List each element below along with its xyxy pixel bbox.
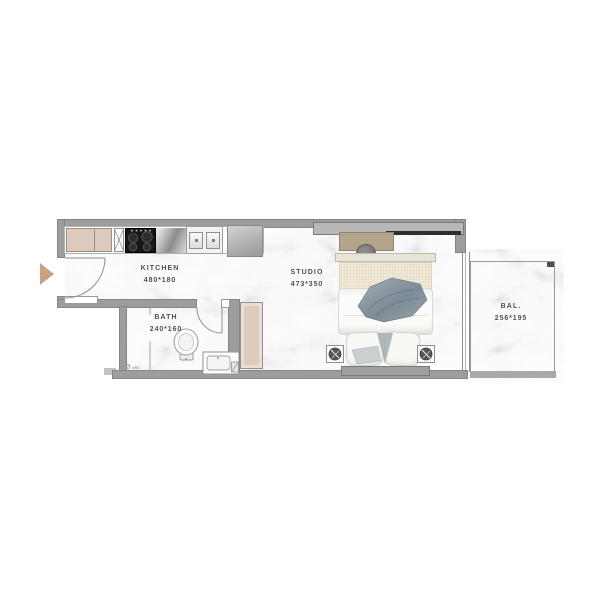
wall-bath-studio-partition [228,299,240,374]
stainless-worktop [156,228,186,253]
tv-panel [386,231,461,235]
studio-name: STUDIO [257,267,357,279]
bed-pillow-right [383,331,420,366]
balcony-name: BAL. [461,301,561,313]
nightstand-right [417,345,435,363]
studio-dims: 473*350 [257,279,357,291]
entrance-arrow-icon [40,263,54,285]
bed-duvet [338,288,433,335]
cooktop [125,228,156,253]
kitchen-dims: 480*180 [110,275,210,287]
bath-label: BATH 240*160 [116,312,216,335]
bath-door-jamb [221,299,230,308]
sink-basin-left [189,232,203,249]
bed-headboard [335,253,436,262]
balcony-corner-unit [547,262,554,267]
kitchen-cabinet [66,228,112,252]
bed-bench [341,366,430,376]
entry-threshold [64,296,98,304]
wardrobe [240,302,263,369]
studio-label: STUDIO 473*350 [257,267,357,290]
bed-pillow-left [345,331,383,366]
tall-unit-symbol [114,228,124,252]
balcony-dims: 256*195 [461,313,561,325]
kitchen-label: KITCHEN 480*180 [110,263,210,286]
nightstand-left [326,345,344,363]
bath-dims: 240*160 [116,324,216,336]
floorplan-canvas: ⌀60 KITCHEN 480*180 STUDI [0,0,600,600]
balcony-label: BAL. 256*195 [461,301,561,324]
balcony-bottom-rail [470,371,556,378]
refrigerator [227,225,263,257]
bath-name: BATH [116,312,216,324]
double-sink [186,226,223,254]
sink-basin-right [206,232,220,249]
kitchen-name: KITCHEN [110,263,210,275]
